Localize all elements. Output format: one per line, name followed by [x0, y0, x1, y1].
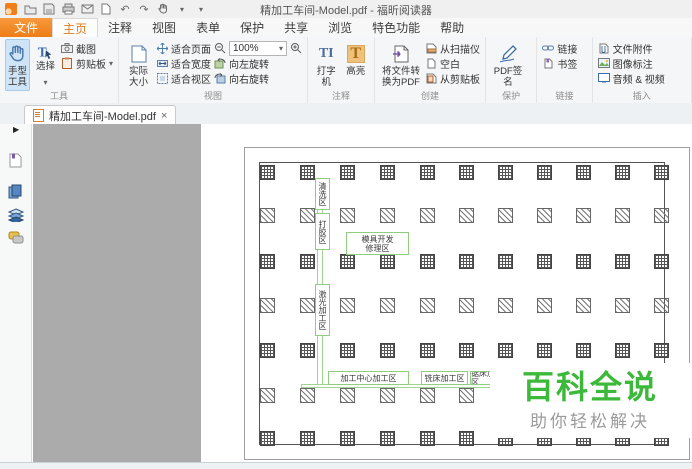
- menu-tab-view[interactable]: 视图: [142, 18, 186, 37]
- fit-visible-icon: [156, 72, 168, 84]
- clipboard-icon: [61, 57, 73, 69]
- menu-tab-features[interactable]: 特色功能: [362, 18, 430, 37]
- audio-video-button[interactable]: 音频 & 视频: [598, 71, 665, 85]
- machine-block: [300, 431, 315, 446]
- fit-page-icon: [156, 42, 168, 54]
- quick-access-toolbar: [0, 2, 208, 16]
- from-clipboard-icon: [425, 72, 437, 84]
- typewriter-button[interactable]: TI 打字机: [313, 39, 340, 91]
- chain-link-icon: [542, 42, 554, 54]
- canvas-background: [33, 124, 201, 462]
- select-cursor-icon: T: [36, 42, 54, 61]
- machine-block: [615, 208, 630, 223]
- machine-block: [498, 254, 513, 269]
- attachment-icon: [598, 42, 610, 54]
- hand-mode-icon[interactable]: [156, 2, 170, 16]
- group-label-view: 视图: [119, 89, 307, 102]
- hand-tool-button[interactable]: 手型工具: [5, 39, 30, 91]
- machine-block: [420, 208, 435, 223]
- machine-block: [340, 165, 355, 180]
- fit-visible-button[interactable]: 适合视区: [156, 71, 211, 85]
- ribbon-group-link: 链接 书签 链接: [537, 37, 592, 103]
- bookmarks-panel-icon[interactable]: [8, 153, 24, 169]
- machine-block: [459, 208, 474, 223]
- zone-label-clean-zone: 清洗区: [315, 178, 330, 210]
- email-icon[interactable]: [80, 2, 94, 16]
- menu-tab-protect[interactable]: 保护: [230, 18, 274, 37]
- machine-block: [654, 298, 669, 313]
- select-tool-button[interactable]: T 选择: [33, 39, 58, 91]
- highlight-icon: T: [347, 42, 365, 66]
- zoom-caret-icon: [279, 43, 283, 54]
- machine-block: [340, 254, 355, 269]
- machine-block: [576, 298, 591, 313]
- audio-video-icon: [598, 72, 610, 84]
- ribbon: 手型工具 T 选择 截图 剪贴板 工具: [0, 37, 692, 104]
- hand-mode-caret-icon[interactable]: [175, 2, 189, 16]
- ribbon-group-view: 实际大小 适合页面 适合宽度 适合视区: [119, 37, 308, 103]
- machine-block: [459, 298, 474, 313]
- zoom-level-value: 100%: [233, 43, 259, 54]
- camera-icon: [61, 42, 73, 54]
- rotate-right-icon: [214, 72, 226, 84]
- fit-page-button[interactable]: 适合页面: [156, 41, 211, 55]
- highlight-button[interactable]: T 高亮: [343, 39, 370, 91]
- menu-tab-help[interactable]: 帮助: [430, 18, 474, 37]
- machine-block: [615, 298, 630, 313]
- fit-width-icon: [156, 57, 168, 69]
- machine-block: [420, 254, 435, 269]
- print-icon[interactable]: [61, 2, 75, 16]
- machine-block: [615, 165, 630, 180]
- zoom-in-icon[interactable]: [290, 42, 302, 54]
- comments-panel-icon[interactable]: [8, 231, 24, 247]
- machine-block: [420, 431, 435, 446]
- machine-block: [260, 165, 275, 180]
- zone-label-milling-zone: 铣床加工区: [421, 371, 468, 385]
- customize-toolbar-icon[interactable]: [194, 2, 208, 16]
- group-label-link: 链接: [537, 89, 591, 102]
- group-label-tools: 工具: [0, 89, 118, 102]
- machine-block: [498, 165, 513, 180]
- bookmark-icon: [542, 57, 554, 69]
- machine-block: [260, 388, 275, 403]
- machine-block: [459, 431, 474, 446]
- machine-block: [459, 343, 474, 358]
- zoom-controls: 100%: [214, 41, 302, 55]
- machine-block: [615, 254, 630, 269]
- machine-block: [420, 343, 435, 358]
- ribbon-group-comment: TI 打字机 T 高亮 注释: [308, 37, 375, 103]
- image-annotation-button[interactable]: 图像标注: [598, 56, 665, 70]
- machine-block: [537, 208, 552, 223]
- watermark-subtitle: 助你轻松解决: [530, 407, 650, 432]
- watermark: 百科全说 助你轻松解决: [490, 363, 690, 438]
- document-tab-title: 精加工车间-Model.pdf: [49, 108, 156, 124]
- snapshot-button[interactable]: 截图: [61, 41, 113, 55]
- actual-size-button[interactable]: 实际大小: [124, 39, 153, 91]
- menu-tab-comment[interactable]: 注释: [98, 18, 142, 37]
- blank-page-icon: [425, 57, 437, 69]
- machine-block: [615, 343, 630, 358]
- machine-block: [340, 298, 355, 313]
- machine-block: [576, 343, 591, 358]
- machine-block: [537, 343, 552, 358]
- rotate-right-button[interactable]: 向右旋转: [214, 71, 302, 85]
- clipboard-caret-icon: [109, 58, 113, 69]
- machine-block: [260, 431, 275, 446]
- navigation-sidebar: [0, 124, 32, 462]
- from-clipboard-button[interactable]: 从剪贴板: [425, 71, 480, 85]
- machine-block: [498, 298, 513, 313]
- menu-tab-file[interactable]: 文件: [0, 18, 52, 37]
- machine-block: [537, 298, 552, 313]
- machine-block: [260, 298, 275, 313]
- blank-page-button[interactable]: 空白: [425, 56, 480, 70]
- machine-block: [576, 208, 591, 223]
- file-attachment-button[interactable]: 文件附件: [598, 41, 665, 55]
- menu-tab-home[interactable]: 主页: [52, 18, 98, 37]
- machine-block: [498, 208, 513, 223]
- expand-panel-icon[interactable]: [13, 125, 19, 134]
- redo-icon[interactable]: [137, 2, 151, 16]
- machine-block: [654, 343, 669, 358]
- machine-block: [340, 343, 355, 358]
- machine-block: [300, 298, 315, 313]
- machine-block: [380, 208, 395, 223]
- machine-block: [654, 254, 669, 269]
- title-bar: 精加工车间-Model.pdf - 福昕阅读器: [0, 0, 692, 18]
- group-label-protect: 保护: [486, 89, 536, 102]
- machine-block: [300, 343, 315, 358]
- machine-block: [300, 208, 315, 223]
- save-icon[interactable]: [42, 2, 56, 16]
- machine-block: [654, 165, 669, 180]
- machine-block: [380, 388, 395, 403]
- machine-block: [459, 388, 474, 403]
- machine-block: [340, 388, 355, 403]
- open-file-icon[interactable]: [23, 2, 37, 16]
- content-area: 清洗区打胶区模具开发修理区激光加工区加工中心加工区铣床加工区锯床加工区 百科全说…: [0, 124, 692, 462]
- clipboard-button[interactable]: 剪贴板: [61, 56, 113, 70]
- fit-width-button[interactable]: 适合宽度: [156, 56, 211, 70]
- layers-panel-icon[interactable]: [8, 208, 24, 224]
- watermark-title: 百科全说: [522, 370, 658, 404]
- new-page-icon[interactable]: [99, 2, 113, 16]
- machine-block: [576, 254, 591, 269]
- machine-block: [537, 254, 552, 269]
- menu-bar: 文件 主页 注释 视图 表单 保护 共享 浏览 特色功能 帮助: [0, 18, 692, 37]
- zone-label-laser-zone: 激光加工区: [315, 284, 330, 336]
- ribbon-group-insert: 文件附件 图像标注 音频 & 视频 插入: [593, 37, 692, 103]
- machine-block: [420, 165, 435, 180]
- machine-block: [380, 254, 395, 269]
- pages-panel-icon[interactable]: [8, 183, 24, 199]
- machine-block: [459, 165, 474, 180]
- machine-block: [340, 208, 355, 223]
- machine-block: [300, 388, 315, 403]
- machine-block: [537, 165, 552, 180]
- group-label-insert: 插入: [593, 89, 691, 102]
- machine-block: [459, 254, 474, 269]
- machine-block: [260, 208, 275, 223]
- zoom-level-combobox[interactable]: 100%: [229, 41, 287, 56]
- machine-block: [654, 208, 669, 223]
- zoom-out-icon[interactable]: [214, 42, 226, 54]
- machine-block: [380, 343, 395, 358]
- rotate-left-icon: [214, 57, 226, 69]
- menu-tab-browse[interactable]: 浏览: [318, 18, 362, 37]
- menu-tab-form[interactable]: 表单: [186, 18, 230, 37]
- convert-to-pdf-button[interactable]: 将文件转换为PDF: [380, 39, 422, 91]
- pdf-file-icon: [33, 109, 44, 122]
- from-scanner-button[interactable]: 从扫描仪: [425, 41, 480, 55]
- machine-block: [380, 298, 395, 313]
- machine-block: [380, 431, 395, 446]
- convert-to-pdf-icon: [392, 42, 410, 66]
- machine-block: [498, 343, 513, 358]
- image-icon: [598, 57, 610, 69]
- machine-block: [576, 165, 591, 180]
- pen-sign-icon: [498, 42, 518, 66]
- select-caret-icon: [43, 72, 47, 90]
- ribbon-group-tools: 手型工具 T 选择 截图 剪贴板 工具: [0, 37, 119, 103]
- status-bar: [0, 462, 692, 469]
- machine-block: [340, 431, 355, 446]
- scanner-icon: [425, 42, 437, 54]
- pdf-sign-button[interactable]: PDF签名: [491, 39, 525, 91]
- group-label-comment: 注释: [308, 89, 374, 102]
- machine-block: [300, 254, 315, 269]
- zone-label-mold-repair-zone: 模具开发修理区: [346, 232, 409, 255]
- document-tab-bar: 精加工车间-Model.pdf: [0, 103, 692, 125]
- machine-block: [300, 165, 315, 180]
- actual-size-icon: [131, 42, 147, 66]
- machine-block: [380, 165, 395, 180]
- group-label-create: 创建: [375, 89, 485, 102]
- rotate-left-button[interactable]: 向左旋转: [214, 56, 302, 70]
- zone-label-glue-zone: 打胶区: [315, 213, 330, 250]
- undo-icon[interactable]: [118, 2, 132, 16]
- hand-icon: [7, 42, 27, 66]
- pdf-page[interactable]: 清洗区打胶区模具开发修理区激光加工区加工中心加工区铣床加工区锯床加工区 百科全说…: [244, 147, 690, 460]
- ribbon-group-protect: PDF签名 保护: [486, 37, 537, 103]
- close-tab-icon[interactable]: [161, 110, 167, 122]
- ribbon-group-create: 将文件转换为PDF 从扫描仪 空白 从剪贴板 创建: [375, 37, 486, 103]
- typewriter-icon: TI: [319, 42, 334, 66]
- machine-block: [420, 388, 435, 403]
- machine-block: [260, 254, 275, 269]
- menu-tab-share[interactable]: 共享: [274, 18, 318, 37]
- window-title: 精加工车间-Model.pdf - 福昕阅读器: [260, 2, 432, 18]
- bookmark-button[interactable]: 书签: [542, 56, 577, 70]
- machine-block: [420, 298, 435, 313]
- zone-label-machining-center-zone: 加工中心加工区: [328, 371, 409, 385]
- foxit-logo-icon[interactable]: [4, 2, 18, 16]
- link-button[interactable]: 链接: [542, 41, 577, 55]
- document-tab[interactable]: 精加工车间-Model.pdf: [24, 105, 176, 125]
- machine-block: [260, 343, 275, 358]
